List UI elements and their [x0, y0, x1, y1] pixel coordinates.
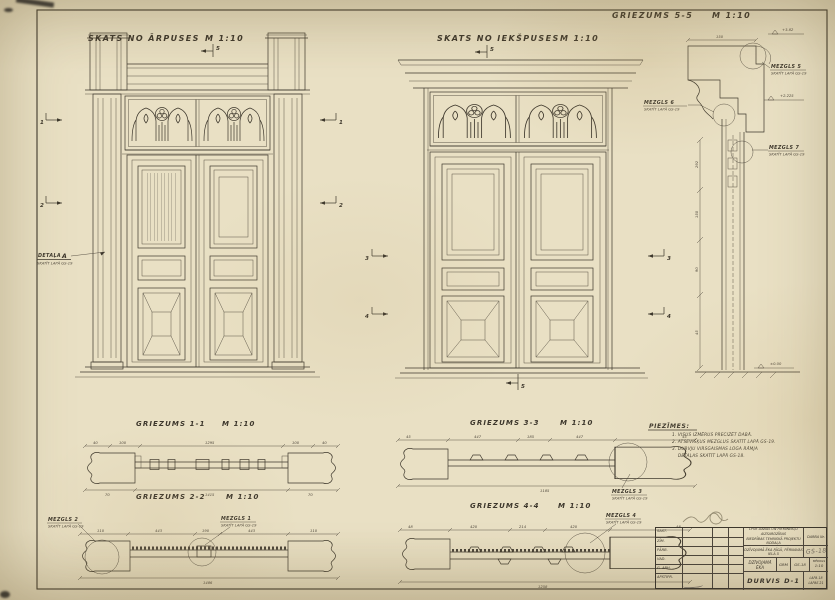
section11-scale: M 1:10 [222, 420, 255, 428]
dim: 447 [576, 435, 584, 439]
scan-smudge [0, 591, 10, 598]
section33-title: GRIEZUMS 3-3 [470, 419, 540, 427]
interior-scale: M 1:10 [560, 34, 599, 43]
section-markers-exterior: 1 2 1 2 [40, 113, 343, 209]
tb-organization: LPSR DABAS UN PIEMINEKĻU AIZSARDZĪBAS BI… [743, 528, 803, 545]
tb-sign [712, 528, 728, 537]
section-1-1: GRIEZUMS 1-1 M 1:10 40 100 1295 100 40 7… [83, 420, 340, 497]
marker-2-left: 2 [40, 203, 44, 209]
marker-4-left: 4 [365, 314, 369, 320]
marker-3-right: 3 [667, 256, 671, 262]
tb-role: APSTIPR. [656, 573, 682, 588]
marker-1-left: 1 [40, 120, 44, 126]
title-block: SAST. ZĪM. PĀRB. VAD. G. ARH. APSTIPR. L… [655, 527, 827, 589]
mezgls4-label: MEZGLS 4 [606, 513, 636, 519]
mezgls1-label: MEZGLS 1 [221, 516, 251, 522]
interior-title: SKATS NO IEKŠPUSES [437, 33, 560, 43]
dim: 70 [308, 493, 313, 497]
tb-sign [712, 546, 728, 555]
interior-view: SKATS NO IEKŠPUSES M 1:10 5 5 [395, 33, 648, 390]
mezgls5-label: MEZGLS 5 [771, 64, 801, 70]
tb-org-line1: LPSR DABAS UN PIEMINEKĻU AIZSARDZĪBAS [744, 528, 803, 537]
dim: 420 [470, 525, 478, 529]
section55-title: GRIEZUMS 5-5 [612, 11, 693, 20]
mezgls3-label: MEZGLS 3 [612, 489, 642, 495]
section44-title: GRIEZUMS 4-4 [470, 502, 540, 510]
tb-role: G. ARH. [656, 564, 682, 573]
mezgls7-ref: SKATĪT LAPĀ GS-19 [769, 152, 805, 157]
s55-dim: 150 [695, 210, 699, 218]
tb-sign [712, 564, 728, 573]
dim: 48 [408, 525, 413, 529]
dim: 40 [93, 441, 98, 445]
tb-signature [682, 546, 712, 555]
note-line: 3. DURVJU VIRSGAISMAS LOGA RĀMJA [672, 446, 758, 451]
notes: PIEZĪMES: 1. VISUS IZMĒRUS PRECIZĒT DABĀ… [648, 421, 776, 458]
section44-scale: M 1:10 [558, 502, 591, 510]
sheet-frame [37, 10, 827, 589]
section22-title: GRIEZUMS 2-2 [136, 493, 206, 501]
dim: 1185 [540, 489, 550, 493]
dim: 185 [527, 435, 535, 439]
marker-2-right: 2 [339, 203, 343, 209]
elevation-top: +3.82 [782, 28, 794, 32]
dim: 447 [474, 435, 482, 439]
dim: 70 [105, 493, 110, 497]
mezgls1-ref: SKATĪT LAPĀ GS-19 [221, 523, 257, 528]
mezgls3-ref: SKATĪT LAPĀ GS-19 [612, 496, 648, 501]
section-5-5: GRIEZUMS 5-5 M 1:10 MEZGLS 5 SKATĪT LAPĀ… [612, 11, 807, 378]
dim: 443 [155, 529, 163, 533]
tb-role: ZĪM. [656, 537, 682, 546]
tb-building: DZĪVOJAMĀ ĒKA [743, 557, 776, 571]
tb-role: VAD. [656, 555, 682, 564]
elevation-mid: +2.225 [780, 94, 794, 98]
tb-signature [682, 537, 712, 546]
s55-top-dim: 150 [716, 35, 724, 39]
marker-1-right: 1 [339, 120, 343, 126]
dim: 100 [119, 441, 127, 445]
mezgls6-label: MEZGLS 6 [644, 100, 674, 106]
drawing-canvas: SKATS NO ĀRPUSES M 1:10 5 [0, 0, 835, 600]
dim: 214 [519, 525, 527, 529]
dim: 1295 [205, 441, 215, 445]
dim: 1258 [538, 585, 548, 589]
tb-date [728, 573, 743, 588]
dim: 110 [97, 529, 105, 533]
mezgls7-label: MEZGLS 7 [769, 145, 799, 151]
drawing-sheet: SKATS NO ĀRPUSES M 1:10 5 [0, 0, 835, 600]
section-5-marker-int: 5 [490, 47, 494, 53]
tb-org-line2: BIEDRĪBAS TEHNISKĀ PROJEKTU NODAĻA [744, 537, 803, 546]
tb-stamp-value: GS-18 [805, 547, 826, 555]
dim: 190 [202, 529, 210, 533]
section33-scale: M 1:10 [560, 419, 593, 427]
mezgls5-ref: SKATĪT LAPĀ GS-19 [771, 71, 807, 76]
section22-scale: M 1:10 [226, 493, 259, 501]
detail-a-ref: SKATĪT LAPĀ GS-19 [37, 261, 73, 266]
mezgls6-ref: SKATĪT LAPĀ GS-19 [644, 107, 680, 112]
tb-scale-value: 1:10 [815, 564, 824, 569]
section-5-marker-bottom: 5 [521, 384, 525, 390]
note-line: 2. ATSEVIŠĶUS MEZGLUS SKATĪT LAPĀ GS-19. [672, 439, 776, 444]
mezgls2-label: MEZGLS 2 [48, 517, 78, 523]
scan-smudge [4, 8, 13, 12]
section-markers-interior: 3 4 3 4 [365, 249, 671, 320]
tb-sign [712, 573, 728, 588]
tb-signature [682, 555, 712, 564]
detail-a-label: DETAĻA [38, 253, 61, 259]
detail-a-letter: A [61, 253, 67, 260]
mezgls4-ref: SKATĪT LAPĀ GS-19 [606, 520, 642, 525]
tb-role: SAST. [656, 528, 682, 537]
s55-dim: 90 [695, 267, 699, 272]
dim: 100 [292, 441, 300, 445]
tb-stamp: GS-18 [803, 545, 828, 557]
detail-a-callout: DETAĻA A SKATĪT LAPĀ GS-19 [37, 252, 105, 266]
tb-signature [682, 528, 712, 537]
dim: 110 [310, 529, 318, 533]
dim: 443 [248, 529, 256, 533]
tb-signature [682, 573, 712, 588]
section-5-marker: 5 [216, 46, 220, 52]
elevation-zero: ±0.00 [770, 362, 782, 366]
dim: 1486 [203, 581, 213, 585]
section55-scale: M 1:10 [712, 11, 751, 20]
tb-object: DZĪVOJAMĀ ĒKA RĪGĀ, PĒRNAVAS IELĀ 5 [743, 545, 803, 557]
s55-dim: 45 [695, 330, 699, 335]
section-4-4: GRIEZUMS 4-4 M 1:10 MEZGLS 4 SKATĪT LAPĀ… [398, 502, 692, 589]
marker-4-right: 4 [667, 314, 671, 320]
tb-date [728, 555, 743, 564]
dim: 40 [322, 441, 327, 445]
tb-date [728, 528, 743, 537]
tb-lapas: LAPAS 21 [809, 581, 824, 586]
note-line: DETAĻAS SKATĪT LAPĀ GS-18. [678, 453, 745, 458]
tb-date [728, 537, 743, 546]
tb-scale: MĒROGS 1:10 [809, 557, 828, 571]
exterior-view: SKATS NO ĀRPUSES M 1:10 5 [75, 33, 320, 377]
dim: 420 [570, 525, 578, 529]
exterior-scale: M 1:10 [205, 34, 244, 43]
tb-doc-title: DURVIS D-1 [743, 571, 803, 590]
section11-title: GRIEZUMS 1-1 [136, 420, 206, 428]
tb-sheet-no: GS-18 [790, 557, 809, 571]
tb-job-number: DARBA Nr. [803, 528, 828, 545]
tb-date [728, 564, 743, 573]
section-2-2: GRIEZUMS 2-2 M 1:10 MEZGLS 2 SKATĪT LAPĀ… [47, 493, 340, 585]
tb-role: PĀRB. [656, 546, 682, 555]
notes-heading: PIEZĪMES: [649, 421, 690, 430]
tb-signature [682, 564, 712, 573]
mezgls2-ref: SKATĪT LAPĀ GS-19 [48, 524, 84, 529]
dim: 1415 [205, 493, 215, 497]
s55-dim: 292 [695, 160, 699, 168]
marker-3-left: 3 [365, 256, 369, 262]
tb-sheet-count: LAPA 18 LAPAS 21 [803, 571, 828, 590]
tb-sign [712, 555, 728, 564]
note-line: 1. VISUS IZMĒRUS PRECIZĒT DABĀ. [672, 432, 753, 437]
tb-stage: GRM [776, 557, 790, 571]
tb-date [728, 546, 743, 555]
dim: 45 [406, 435, 411, 439]
tb-sign [712, 537, 728, 546]
section-3-3: GRIEZUMS 3-3 M 1:10 45 447 185 447 45 ME… [396, 419, 697, 501]
